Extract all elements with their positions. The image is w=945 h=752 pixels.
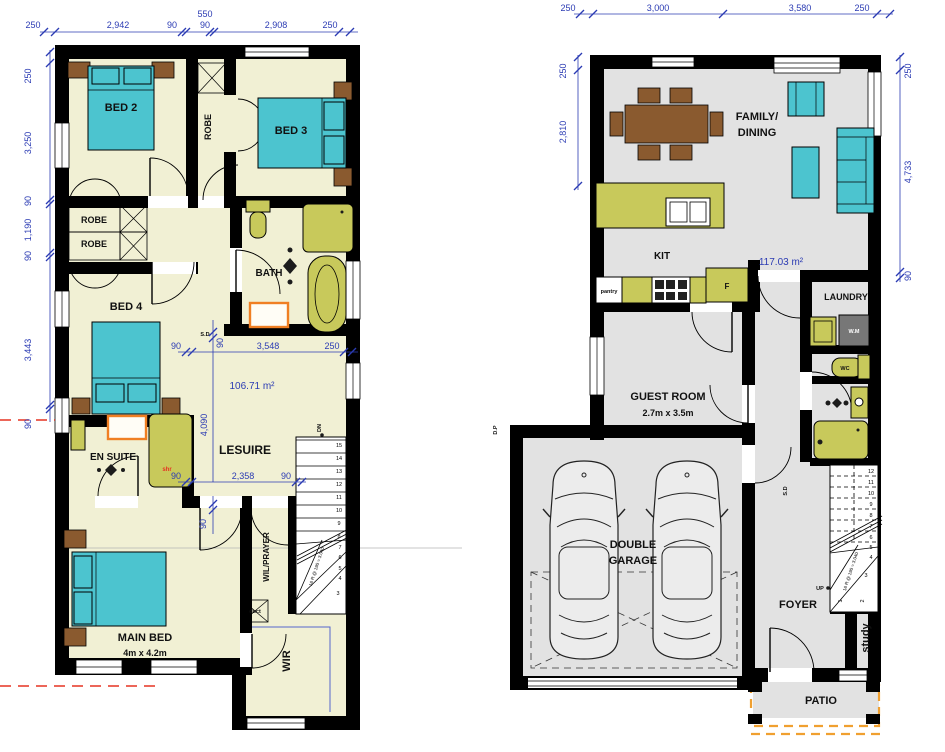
dining-chair <box>638 145 660 160</box>
room-label-family-2: DINING <box>738 127 777 139</box>
armchair <box>788 82 824 116</box>
svg-text:90: 90 <box>200 20 210 30</box>
bed3-nightstand-top <box>334 82 352 100</box>
room-label-robe-b: ROBE <box>81 239 107 249</box>
floor-plan-canvas: BED 2 BED 3 ROBE ROBE ROBE BATH BED 4 EN… <box>0 0 945 747</box>
svg-text:4,090: 4,090 <box>199 414 209 437</box>
label-fridge: F <box>725 282 730 291</box>
ground-floor-plan: FAMILY/ DINING KIT 117.03 m² pantry F LA… <box>493 3 913 734</box>
svg-text:250: 250 <box>25 20 40 30</box>
label-washing-machine: W.M <box>849 329 860 335</box>
dining-chair <box>670 145 692 160</box>
svg-text:2: 2 <box>860 599 866 602</box>
room-label-patio: PATIO <box>805 695 837 707</box>
room-label-bed3: BED 3 <box>275 125 307 137</box>
upper-floor-plan: BED 2 BED 3 ROBE ROBE ROBE BATH BED 4 EN… <box>0 9 462 730</box>
car-right <box>646 461 728 659</box>
svg-text:10: 10 <box>336 508 342 514</box>
svg-text:90: 90 <box>171 341 181 351</box>
mainbed-nightstand-top <box>64 530 86 548</box>
sofa <box>837 128 874 213</box>
svg-text:90: 90 <box>171 471 181 481</box>
dining-table <box>625 105 708 143</box>
svg-text:6: 6 <box>338 555 341 561</box>
svg-text:S.D: S.D <box>200 332 209 338</box>
room-label-wil-prayer: WIL/PRAYER <box>262 532 271 582</box>
mainbed-nightstand-bottom <box>64 628 86 646</box>
svg-text:3,580: 3,580 <box>789 3 812 13</box>
svg-text:7: 7 <box>869 524 872 530</box>
dining-chair <box>610 112 623 136</box>
coffee-table <box>792 147 819 198</box>
svg-text:1: 1 <box>838 599 844 602</box>
svg-text:8: 8 <box>869 513 872 519</box>
svg-text:5: 5 <box>869 545 872 551</box>
ground-dim-right: 250 4,733 90 <box>896 53 913 282</box>
ground-dim-left: 250 2,810 <box>558 53 582 190</box>
svg-text:3,000: 3,000 <box>647 3 670 13</box>
svg-text:3: 3 <box>336 591 339 597</box>
bath-toilet-bowl <box>250 212 266 238</box>
svg-text:9: 9 <box>337 521 340 527</box>
svg-text:90: 90 <box>23 196 33 206</box>
svg-text:12: 12 <box>336 482 342 488</box>
label-pantry: pantry <box>601 289 619 295</box>
room-label-guest: GUEST ROOM <box>630 391 705 403</box>
svg-text:1,190: 1,190 <box>23 219 33 242</box>
label-sd: S.D <box>783 486 789 495</box>
ensuite-vanity <box>108 416 146 439</box>
svg-text:12: 12 <box>868 469 874 475</box>
svg-text:13: 13 <box>336 469 342 475</box>
label-duct: duct <box>249 609 261 615</box>
upper-area-text: 106.71 m² <box>229 381 275 392</box>
ground-area-text: 117.03 m² <box>759 257 804 268</box>
bath-tub <box>308 256 346 332</box>
svg-text:250: 250 <box>903 63 913 78</box>
svg-text:15: 15 <box>336 443 342 449</box>
svg-text:2,358: 2,358 <box>232 471 255 481</box>
room-label-main-bed: MAIN BED <box>118 632 172 644</box>
svg-text:3: 3 <box>864 573 867 579</box>
svg-text:11: 11 <box>336 495 342 501</box>
room-label-ensuite: EN SUITE <box>90 452 136 463</box>
room-label-family-1: FAMILY/ <box>736 111 778 123</box>
dining-chair <box>670 88 692 103</box>
svg-text:250: 250 <box>854 3 869 13</box>
svg-text:3,443: 3,443 <box>23 339 33 362</box>
room-label-bath: BATH <box>255 268 282 279</box>
svg-text:250: 250 <box>560 3 575 13</box>
svg-text:4,733: 4,733 <box>903 161 913 184</box>
svg-text:10: 10 <box>868 491 874 497</box>
svg-text:11: 11 <box>868 480 874 486</box>
svg-text:250: 250 <box>324 341 339 351</box>
bed4-nightstand-left <box>72 398 90 414</box>
room-label-laundry: LAUNDRY <box>824 292 868 302</box>
svg-text:14: 14 <box>336 456 342 462</box>
label-wc: WC <box>840 366 849 372</box>
svg-text:5: 5 <box>338 566 341 572</box>
dining-chair <box>710 112 723 136</box>
svg-text:9: 9 <box>869 502 872 508</box>
svg-text:90: 90 <box>167 20 177 30</box>
bath-toilet-cistern <box>246 200 270 212</box>
upper-dim-top: 250 2,942 90 550 90 2,908 250 <box>25 9 358 36</box>
room-label-study: study <box>860 622 872 652</box>
ground-dim-top: 250 3,000 3,580 250 <box>560 3 894 18</box>
svg-text:3,548: 3,548 <box>257 341 280 351</box>
main-bed-size: 4m x 4.2m <box>123 648 167 658</box>
upper-dim-left: 250 3,250 90 1,190 90 3,443 90 <box>23 48 54 429</box>
room-label-wir: WIR <box>281 650 293 671</box>
svg-text:250: 250 <box>23 68 33 83</box>
room-label-robe-bed3: ROBE <box>203 114 213 140</box>
bath-shower <box>303 204 353 252</box>
room-label-kit: KIT <box>654 251 670 262</box>
svg-text:4: 4 <box>338 576 341 582</box>
svg-text:2,908: 2,908 <box>265 20 288 30</box>
bed3-nightstand-bottom <box>334 168 352 186</box>
stairs-up-label: UP <box>816 586 824 592</box>
svg-text:90: 90 <box>198 519 208 529</box>
room-label-garage-2: GARAGE <box>609 555 657 567</box>
ensuite-cabinet <box>71 420 85 450</box>
bath-vanity <box>250 303 288 327</box>
bed4-nightstand-right <box>162 398 180 414</box>
svg-text:90: 90 <box>281 471 291 481</box>
label-dp: D.P <box>493 425 499 435</box>
ground-shower <box>814 421 868 459</box>
svg-text:4: 4 <box>869 555 872 561</box>
svg-text:2,810: 2,810 <box>558 121 568 144</box>
svg-text:550: 550 <box>197 9 212 19</box>
svg-text:250: 250 <box>558 63 568 78</box>
svg-text:90: 90 <box>215 338 225 348</box>
room-label-bed2: BED 2 <box>105 102 137 114</box>
svg-text:3,250: 3,250 <box>23 132 33 155</box>
dining-chair <box>638 88 660 103</box>
svg-text:90: 90 <box>23 419 33 429</box>
guest-room-size: 2.7m x 3.5m <box>642 408 693 418</box>
room-label-robe-a: ROBE <box>81 215 107 225</box>
svg-text:7: 7 <box>338 545 341 551</box>
svg-text:90: 90 <box>23 251 33 261</box>
ground-stairs <box>830 465 882 612</box>
svg-text:90: 90 <box>903 271 913 281</box>
bed2-nightstand-right <box>152 62 174 78</box>
svg-text:2,942: 2,942 <box>107 20 130 30</box>
room-label-bed4: BED 4 <box>110 301 143 313</box>
bed2-nightstand-left <box>68 62 90 78</box>
stairs-dn-label: DN <box>317 424 323 432</box>
svg-text:250: 250 <box>322 20 337 30</box>
room-label-leisure: LESUIRE <box>219 443 271 457</box>
svg-text:8: 8 <box>337 534 340 540</box>
room-label-garage-1: DOUBLE <box>610 539 656 551</box>
room-label-foyer: FOYER <box>779 599 817 611</box>
svg-text:6: 6 <box>869 535 872 541</box>
wc-toilet-cistern <box>858 355 870 379</box>
floor-plan-drawing: BED 2 BED 3 ROBE ROBE ROBE BATH BED 4 EN… <box>0 0 945 747</box>
